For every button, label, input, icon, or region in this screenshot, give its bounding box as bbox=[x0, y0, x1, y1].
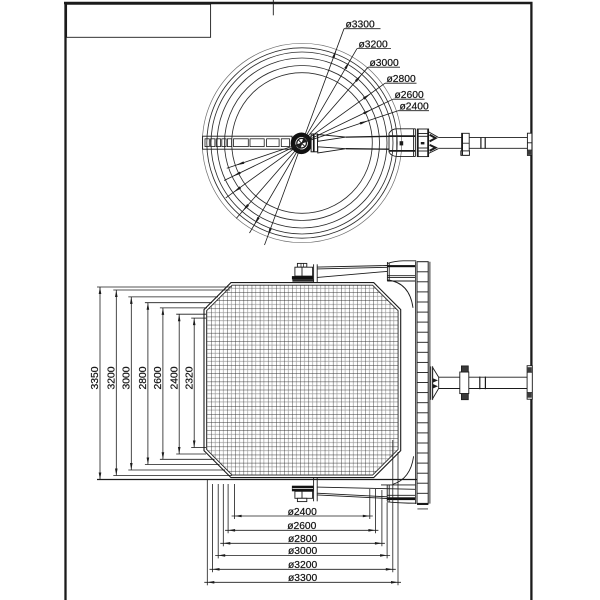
svg-text:3200: 3200 bbox=[107, 366, 118, 389]
svg-text:2400: 2400 bbox=[169, 366, 180, 389]
svg-text:ø2800: ø2800 bbox=[387, 74, 416, 85]
svg-text:2600: 2600 bbox=[153, 366, 164, 389]
svg-text:ø3300: ø3300 bbox=[288, 573, 317, 584]
svg-text:3000: 3000 bbox=[122, 366, 133, 389]
svg-text:ø3000: ø3000 bbox=[370, 58, 399, 69]
svg-text:ø2600: ø2600 bbox=[287, 521, 316, 532]
svg-text:ø3000: ø3000 bbox=[288, 546, 317, 557]
svg-text:ø3300: ø3300 bbox=[346, 20, 375, 31]
svg-text:3350: 3350 bbox=[90, 366, 101, 389]
svg-text:ø2400: ø2400 bbox=[288, 507, 317, 518]
svg-text:ø2800: ø2800 bbox=[288, 534, 317, 545]
svg-text:2800: 2800 bbox=[138, 366, 149, 389]
svg-text:ø3200: ø3200 bbox=[288, 560, 317, 571]
svg-text:2320: 2320 bbox=[184, 366, 195, 389]
svg-text:ø3200: ø3200 bbox=[359, 40, 388, 51]
svg-text:ø2600: ø2600 bbox=[395, 90, 424, 101]
svg-text:ø2400: ø2400 bbox=[400, 102, 429, 113]
